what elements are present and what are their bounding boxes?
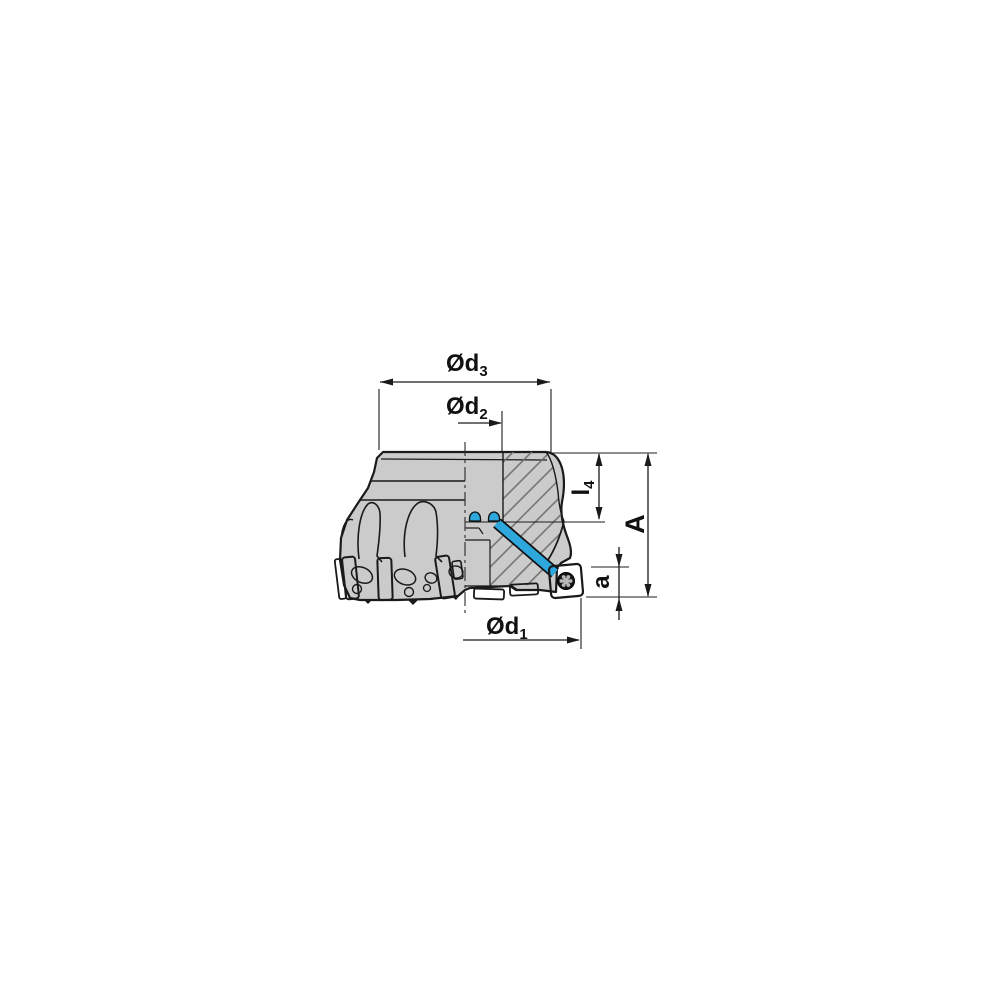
arrow-down-icon [596,507,603,520]
arrow-right-icon [537,379,550,386]
milling-cutter-drawing: Ød3 Ød2 Ød1 l4 A a [0,0,1000,1000]
arrow-up-icon [645,453,652,466]
screw-star-lobe [562,583,566,587]
dim-label-l4: l4 [568,480,598,496]
screw-star-lobe [569,579,573,583]
coolant-port-2 [489,512,500,521]
cutting-tip-mark-1 [363,599,373,604]
screw-star-lobe [566,583,570,587]
screw-star-lobe [566,575,570,579]
dim-label-A: A [620,514,650,534]
dimension-d1: Ød1 [463,598,581,649]
arrow-down-icon [616,554,623,567]
arrow-up-icon [616,598,623,611]
screw-star-lobe [562,575,566,579]
arrow-down-icon [645,584,652,597]
arrow-right-icon [567,637,580,644]
arrow-left-icon [380,379,393,386]
screw-star-lobe [560,579,564,583]
torx-screw-icon [558,573,575,590]
arrow-up-icon [596,453,603,466]
dim-label-d1: Ød1 [486,613,528,643]
dim-label-d2: Ød2 [446,393,488,423]
dimension-l4: l4 [549,453,657,520]
dimension-d2: Ød2 [446,393,502,452]
coolant-port-1 [470,512,481,521]
cutting-tip-mark-2 [408,600,418,605]
technical-drawing-page: Ød3 Ød2 Ød1 l4 A a [0,0,1000,1000]
arrow-right-icon [489,420,502,427]
insert-wiper-1 [474,588,504,599]
dim-label-a: a [588,575,615,589]
dim-label-d3: Ød3 [446,350,488,380]
dimension-a: a [588,547,629,620]
